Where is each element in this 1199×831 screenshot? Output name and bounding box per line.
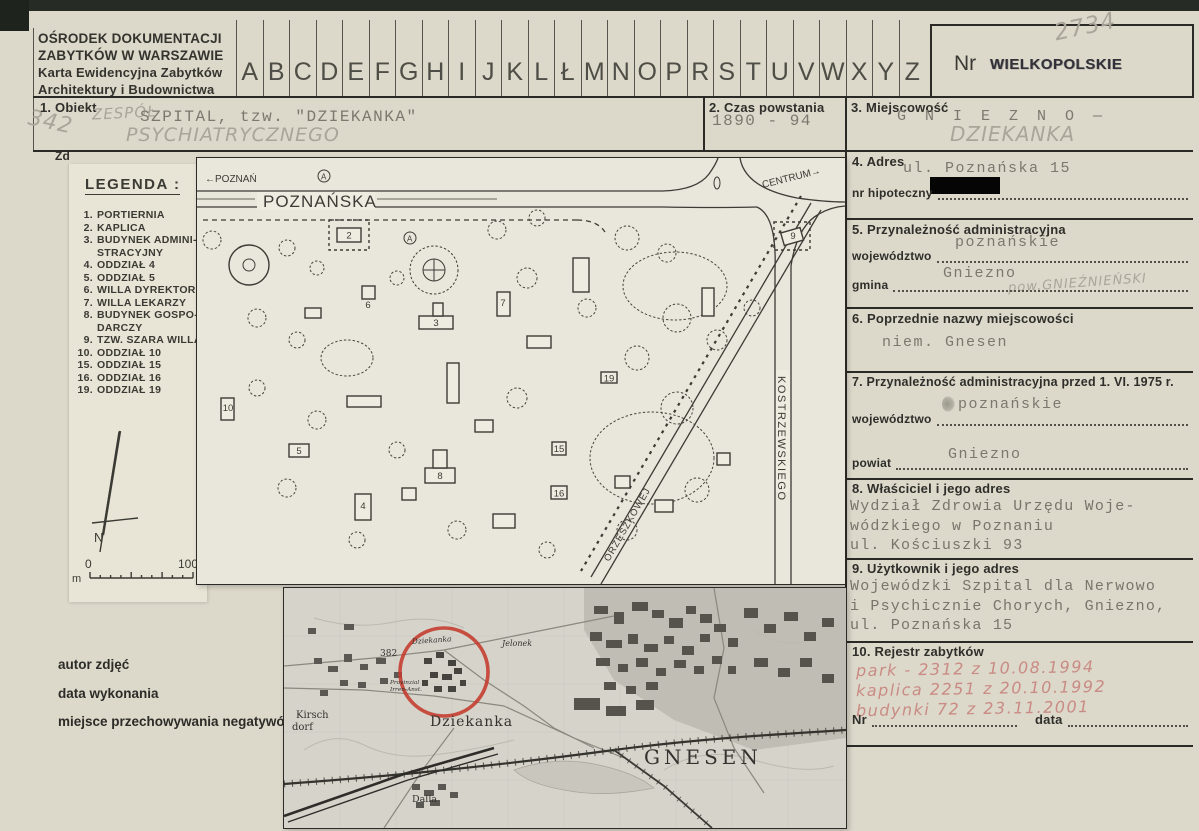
legend-item: 5. ODDZIAŁ 5: [69, 272, 207, 285]
field-2-value: 1890 - 94: [712, 112, 812, 130]
frame-line: [33, 150, 1193, 152]
alphabet-letter: H: [422, 20, 449, 96]
alphabet-letter: U: [766, 20, 793, 96]
scale-zero: 0: [85, 557, 92, 571]
zd-label: Zd: [55, 149, 70, 163]
kirschdorf-label-2: dorf: [292, 722, 314, 733]
svg-text:9: 9: [790, 231, 795, 242]
field-6-value: niem. Gnesen: [882, 334, 1008, 351]
alphabet-letter: V: [793, 20, 820, 96]
building-numbers: 2 3 4 5 6 7 8 9 10 15 16 19: [223, 231, 796, 513]
alphabet-letter: D: [316, 20, 343, 96]
svg-text:2: 2: [346, 231, 351, 242]
field-1-pencil-below: PSYCHIATRYCZNEGO: [126, 124, 340, 146]
legend-item: 4. ODDZIAŁ 4: [69, 259, 207, 272]
field-3-pencil: DZIEKANKA: [950, 122, 1075, 146]
alphabet-letter: P: [660, 20, 687, 96]
alphabet-letter: Ł: [554, 20, 581, 96]
alphabet-letter: W: [819, 20, 846, 96]
direction-label-poznan: ←POZNAŃ: [205, 172, 257, 185]
svg-text:10: 10: [223, 403, 234, 414]
street-label-poznanska: POZNAŃSKA: [263, 192, 377, 211]
field-10-entries: park - 2312 z 10.08.1994kaplica 2251 z 2…: [856, 659, 1106, 719]
svg-text:A: A: [321, 173, 327, 182]
legend-list: 1. PORTIERNIA 2. KAPLICA 3. BUDYNEK ADMI…: [69, 209, 207, 397]
field-7-powiat-label: powiat: [852, 456, 891, 470]
frame-line: [236, 20, 237, 96]
site-plan: POZNAŃSKA ←POZNAŃ CENTRUM→ KOSTRZEWSKIEG…: [196, 157, 846, 585]
legend-item: 8. BUDYNEK GOSPO- DARCZY: [69, 309, 207, 334]
scale-unit: m: [72, 573, 81, 585]
alphabet-letter: T: [740, 20, 767, 96]
field-4-label: 4. Adres: [852, 154, 904, 169]
legend-item: 2. KAPLICA: [69, 222, 207, 235]
frame-line: [845, 307, 1193, 309]
nr-label: Nr: [954, 52, 976, 76]
frame-line: [845, 218, 1193, 220]
anstalt-label-2: Irren-Anst.: [389, 687, 422, 693]
gnesen-label: GNESEN: [644, 745, 762, 769]
dotted-line: [938, 192, 1188, 200]
north-arrow-crossbar: [92, 518, 138, 523]
svg-text:4: 4: [360, 501, 365, 512]
dotted-line: [937, 255, 1188, 263]
street-label-kostrzewskiego: KOSTRZEWSKIEGO: [775, 376, 787, 502]
legend-item: 6. WILLA DYREKTORA: [69, 284, 207, 297]
legend-item: 9. TZW. SZARA WILLA: [69, 334, 207, 347]
site-plan-roads: [197, 158, 845, 584]
ink-smudge: [942, 396, 955, 412]
svg-text:8: 8: [437, 471, 442, 482]
alphabet-letter: L: [528, 20, 555, 96]
caption-line: autor zdjęć: [58, 651, 295, 680]
alphabet-letter: K: [501, 20, 528, 96]
alphabet-letter: G: [395, 20, 422, 96]
svg-text:7: 7: [500, 298, 505, 309]
field-7-label: 7. Przynależność administracyjna przed 1…: [852, 375, 1174, 389]
frame-line: [703, 97, 705, 150]
alphabet-letter: C: [289, 20, 316, 96]
scale-bar: [90, 572, 193, 578]
field-8-label: 8. Właściciel i jego adres: [852, 481, 1010, 496]
field-8-value: Wydział Zdrowia Urzędu Woje-wódzkiego w …: [850, 497, 1136, 556]
north-label: N: [94, 530, 103, 545]
alphabet-letter: F: [369, 20, 396, 96]
record-card: OŚRODEK DOKUMENTACJIZABYTKÓW W WARSZAWIE…: [0, 0, 1199, 831]
svg-text:5: 5: [296, 446, 301, 457]
field-10-label: 10. Rejestr zabytków: [852, 644, 984, 659]
field-9-label: 9. Użytkownik i jego adres: [852, 561, 1019, 576]
svg-text:A: A: [407, 235, 413, 244]
photo-caption: autor zdjęćdata wykonaniamiejsce przecho…: [58, 651, 295, 737]
field-4-sub-label: nr hipoteczny: [852, 186, 933, 200]
card-number-box: Nr WIELKOPOLSKIE 2734: [930, 24, 1194, 98]
caption-line: miejsce przechowywania negatywów: [58, 708, 295, 737]
field-8-line: ul. Kościuszki 93: [850, 536, 1136, 556]
field-10-data-label: data: [1035, 712, 1063, 727]
round-garden: [229, 245, 458, 294]
alphabet-letter: S: [713, 20, 740, 96]
city-map-photo: 382 Dziekanka Provinzial Irren-Anst. Dzi…: [283, 587, 847, 829]
field-7-wojewodztwo-value: poznańskie: [958, 396, 1063, 413]
legend-title: LEGENDA :: [85, 176, 180, 195]
scan-edge-strip: [0, 0, 1199, 11]
svg-text:3: 3: [433, 318, 438, 329]
institution-header: OŚRODEK DOKUMENTACJIZABYTKÓW W WARSZAWIE…: [38, 30, 238, 98]
legend-item: 1. PORTIERNIA: [69, 209, 207, 222]
jelonek-label: Jelonek: [500, 639, 532, 648]
frame-line: [33, 96, 1193, 98]
field-4-value: ul. Poznańska 15: [903, 160, 1071, 177]
alphabet-letter: A: [237, 20, 263, 96]
scan-edge-corner: [0, 0, 29, 31]
alphabet-letter: X: [846, 20, 873, 96]
alphabet-letter: Y: [872, 20, 899, 96]
direction-label-centrum: CENTRUM→: [761, 166, 822, 191]
field-9-line: Wojewódzki Szpital dla Nerwowo: [850, 577, 1166, 597]
legend-item: 15. ODDZIAŁ 15: [69, 359, 207, 372]
frame-line: [845, 558, 1193, 560]
dziekanka-small-label: Dziekanka: [411, 634, 452, 646]
dotted-line: [1068, 719, 1188, 727]
site-plan-buildings: [221, 220, 810, 528]
frame-line: [845, 371, 1193, 373]
alphabet-letter: J: [475, 20, 502, 96]
frame-line: [845, 641, 1193, 643]
svg-text:19: 19: [604, 374, 615, 385]
alphabet-letter: R: [687, 20, 714, 96]
dotted-line: [893, 284, 1188, 292]
hospital-blocks: [422, 652, 466, 692]
voivodeship-stamp: WIELKOPOLSKIE: [990, 56, 1122, 73]
street-label-orzeszkowej: ORZESZKOWEJ: [602, 486, 653, 564]
dotted-line: [937, 418, 1188, 426]
dotted-line: [896, 462, 1188, 470]
pond: [514, 761, 654, 793]
alphabet-letter: I: [448, 20, 475, 96]
alphabet-letter: N: [607, 20, 634, 96]
caption-line: data wykonania: [58, 680, 295, 709]
field-9-line: ul. Poznańska 15: [850, 616, 1166, 636]
field-1-label: 1. Obiekt: [40, 100, 97, 115]
institution-line: Karta Ewidencyjna Zabytków: [38, 64, 238, 81]
field-9-line: i Psychicznie Chorych, Gniezno,: [850, 597, 1166, 617]
alphabet-letter: B: [263, 20, 290, 96]
dalla-label: Dalla: [412, 794, 437, 805]
field-6-label: 6. Poprzednie nazwy miejscowości: [852, 311, 1074, 326]
road-number-label: 382: [380, 649, 397, 659]
svg-text:15: 15: [554, 444, 565, 455]
field-8-line: wódzkiego w Poznaniu: [850, 517, 1136, 537]
field-10-nr-label: Nr: [852, 712, 867, 727]
svg-text:6: 6: [365, 300, 370, 311]
alphabet-index-strip: ABCDEFGHIJKLŁMNOPRSTUVWXYZ: [237, 20, 925, 96]
legend-item: 3. BUDYNEK ADMINI- STRACYJNY: [69, 234, 207, 259]
legend-item: 7. WILLA LEKARZY: [69, 297, 207, 310]
svg-text:16: 16: [554, 489, 565, 500]
alphabet-letter: E: [342, 20, 369, 96]
field-5-gmina-label: gmina: [852, 278, 888, 292]
alphabet-letter: Z: [899, 20, 926, 96]
alphabet-letter: M: [581, 20, 608, 96]
institution-line: OŚRODEK DOKUMENTACJI: [38, 30, 238, 47]
legend-item: 10. ODDZIAŁ 10: [69, 347, 207, 360]
card-number-pencil: 2734: [1052, 8, 1119, 46]
trees: [203, 210, 760, 558]
field-9-value: Wojewódzki Szpital dla Nerwowoi Psychicz…: [850, 577, 1166, 636]
kirschdorf-label-1: Kirsch: [296, 710, 329, 721]
legend-item: 16. ODDZIAŁ 16: [69, 372, 207, 385]
legend-item: 19. ODDZIAŁ 19: [69, 384, 207, 397]
field-7-wojewodztwo-label: województwo: [852, 412, 932, 426]
field-8-line: Wydział Zdrowia Urzędu Woje-: [850, 497, 1136, 517]
institution-line: ZABYTKÓW W WARSZAWIE: [38, 47, 238, 64]
frame-line: [845, 745, 1193, 747]
dziekanka-large-label: Dziekanka: [430, 714, 513, 730]
anstalt-label-1: Provinzial: [389, 680, 419, 686]
north-arrow-and-scale: N 0 100 m: [70, 420, 210, 598]
alphabet-letter: O: [634, 20, 661, 96]
frame-line: [845, 478, 1193, 480]
dotted-line: [872, 719, 1017, 727]
field-5-wojewodztwo-label: województwo: [852, 249, 932, 263]
